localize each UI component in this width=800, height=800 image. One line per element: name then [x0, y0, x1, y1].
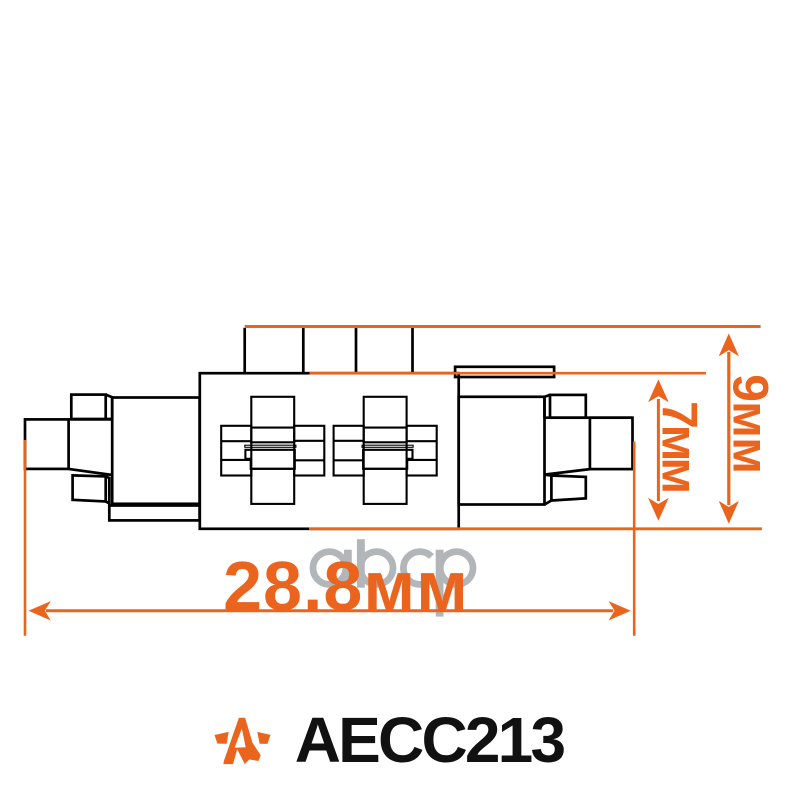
svg-text:AECC213: AECC213 — [295, 704, 565, 776]
svg-text:9мм: 9мм — [722, 374, 778, 473]
svg-text:7мм: 7мм — [651, 401, 707, 491]
svg-text:28.8мм: 28.8мм — [223, 547, 469, 625]
